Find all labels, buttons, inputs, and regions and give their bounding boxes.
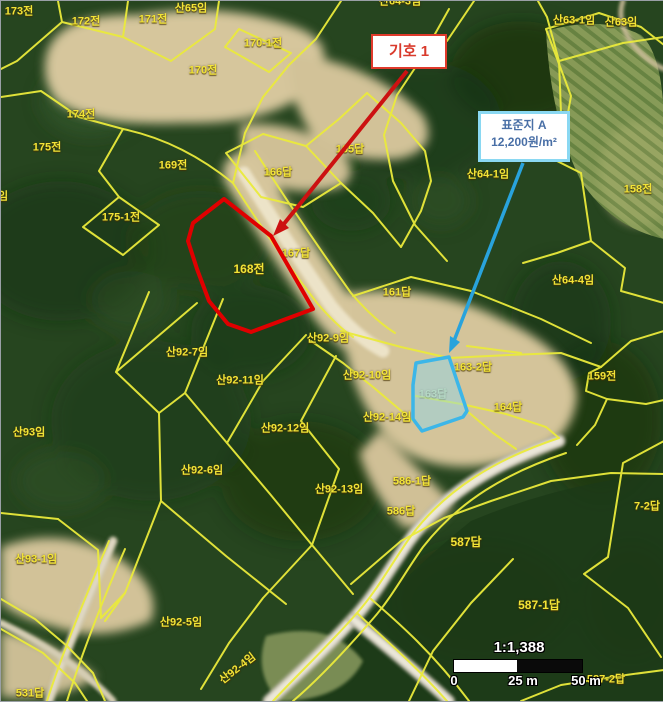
parcel-label: 산92-10임 bbox=[343, 371, 391, 382]
parcel-label: 산63-1임 bbox=[553, 16, 595, 27]
parcel-label: 175-1전 bbox=[102, 213, 140, 224]
symbol-callout: 기호 1 bbox=[371, 34, 447, 69]
symbol-callout-label: 기호 1 bbox=[389, 43, 429, 60]
parcel-label: 산92-5임 bbox=[160, 618, 202, 629]
scale-tick-end: 50 m bbox=[571, 673, 601, 688]
parcel-label: 169전 bbox=[159, 161, 187, 172]
parcel-label: 산64-3임 bbox=[379, 0, 421, 8]
scale-strip bbox=[453, 659, 583, 673]
parcel-label: 산64-4임 bbox=[552, 276, 594, 287]
parcel-label: 171전 bbox=[139, 15, 167, 26]
parcel-label: 587답 bbox=[450, 536, 481, 548]
parcel-label: 163답 bbox=[419, 390, 447, 401]
parcel-labels-layer: 173전 산65임 172전 171전 산64-3임 산63-1임 산63임 1… bbox=[1, 1, 663, 701]
scale-strip-black-segment bbox=[517, 660, 582, 672]
parcel-label: 174전 bbox=[67, 110, 95, 121]
parcel-label: 164답 bbox=[494, 403, 522, 414]
parcel-label: 161답 bbox=[383, 288, 411, 299]
parcel-label: 산93임 bbox=[13, 428, 45, 439]
parcel-label: 166답 bbox=[264, 168, 292, 179]
standard-lot-callout: 표준지 A 12,200원/m² bbox=[478, 111, 570, 162]
parcel-label: 산63임 bbox=[605, 18, 637, 29]
scale-tick-zero: 0 bbox=[450, 673, 457, 688]
parcel-label: 159전 bbox=[588, 372, 616, 383]
parcel-label: 170전 bbox=[189, 66, 217, 77]
parcel-label: 531답 bbox=[16, 689, 44, 700]
parcel-label: 산92-11임 bbox=[216, 376, 264, 387]
scale-bar: 1:1,388 0 25 m 50 m bbox=[441, 639, 656, 697]
parcel-label: 산92-9임 bbox=[307, 334, 349, 345]
parcel-label: 586-1답 bbox=[393, 477, 431, 488]
parcel-label: 165답 bbox=[336, 145, 364, 156]
parcel-label: 산92-4임 bbox=[218, 652, 258, 687]
parcel-label: 167답 bbox=[282, 249, 310, 260]
parcel-label: 산92-13임 bbox=[315, 485, 363, 496]
parcel-label: 산92-7임 bbox=[166, 348, 208, 359]
parcel-label: 산64-1임 bbox=[467, 170, 509, 181]
parcel-label: 163-2답 bbox=[454, 363, 492, 374]
parcel-label: 170-1전 bbox=[244, 39, 282, 50]
map-viewport[interactable]: 173전 산65임 172전 171전 산64-3임 산63-1임 산63임 1… bbox=[0, 0, 663, 702]
parcel-label: 168전 bbox=[233, 263, 264, 275]
parcel-label: 산65임 bbox=[175, 4, 207, 15]
parcel-label: 172전 bbox=[72, 17, 100, 28]
scale-ratio: 1:1,388 bbox=[461, 639, 577, 656]
parcel-label: 산93-1임 bbox=[15, 555, 57, 566]
standard-lot-price: 12,200원/m² bbox=[481, 134, 567, 151]
standard-lot-title: 표준지 A bbox=[481, 117, 567, 134]
parcel-label: 175전 bbox=[33, 143, 61, 154]
parcel-label: 산92-12임 bbox=[261, 424, 309, 435]
scale-tick-mid: 25 m bbox=[508, 673, 538, 688]
parcel-label: 586답 bbox=[387, 507, 415, 518]
parcel-label: 587-1답 bbox=[518, 599, 560, 611]
parcel-label: 산92-14임 bbox=[363, 413, 411, 424]
parcel-label: 7-2답 bbox=[634, 502, 660, 513]
parcel-label: 산92-6임 bbox=[181, 466, 223, 477]
parcel-label: 임 bbox=[0, 192, 8, 203]
parcel-label: 173전 bbox=[5, 7, 33, 18]
parcel-label: 158전 bbox=[624, 185, 652, 196]
